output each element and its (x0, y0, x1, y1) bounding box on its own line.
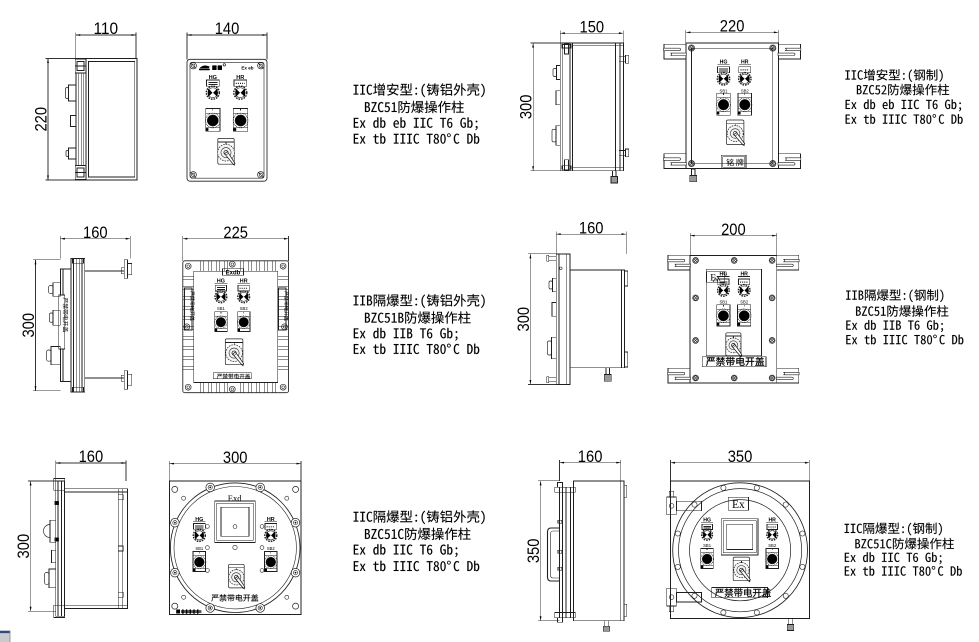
svg-text:200: 200 (721, 220, 746, 239)
svg-text:SB2: SB2 (740, 300, 749, 305)
svg-text:Ex: Ex (732, 499, 745, 511)
svg-text:225: 225 (223, 223, 248, 242)
svg-text:140: 140 (215, 19, 240, 38)
svg-text:Exd: Exd (228, 493, 243, 503)
svg-text:SB2: SB2 (768, 543, 777, 548)
svg-text:160: 160 (79, 447, 104, 466)
svg-text:160: 160 (578, 447, 603, 466)
svg-text:SB1: SB1 (195, 546, 204, 551)
svg-text:Exdb: Exdb (226, 270, 241, 276)
svg-text:300: 300 (223, 448, 248, 467)
svg-text:300: 300 (517, 95, 536, 120)
svg-text:SB1: SB1 (217, 306, 226, 311)
svg-text:350: 350 (728, 447, 753, 466)
svg-text:SB1: SB1 (719, 300, 728, 305)
svg-text:220: 220 (720, 17, 745, 36)
svg-text:SB1: SB1 (720, 88, 729, 93)
svg-text:SB2: SB2 (240, 306, 249, 311)
svg-text:SB2: SB2 (741, 88, 750, 93)
svg-text:300: 300 (14, 534, 33, 559)
svg-text:SB1: SB1 (703, 543, 712, 548)
svg-text:110: 110 (94, 19, 119, 38)
svg-text:300: 300 (514, 307, 533, 332)
svg-text:160: 160 (83, 223, 108, 242)
svg-text:150: 150 (580, 17, 605, 36)
svg-text:220: 220 (31, 107, 50, 132)
svg-text:300: 300 (19, 313, 38, 338)
svg-text:SB2: SB2 (267, 546, 276, 551)
svg-text:Ex eb: Ex eb (241, 65, 253, 70)
svg-text:160: 160 (579, 218, 604, 237)
svg-text:350: 350 (524, 539, 543, 564)
